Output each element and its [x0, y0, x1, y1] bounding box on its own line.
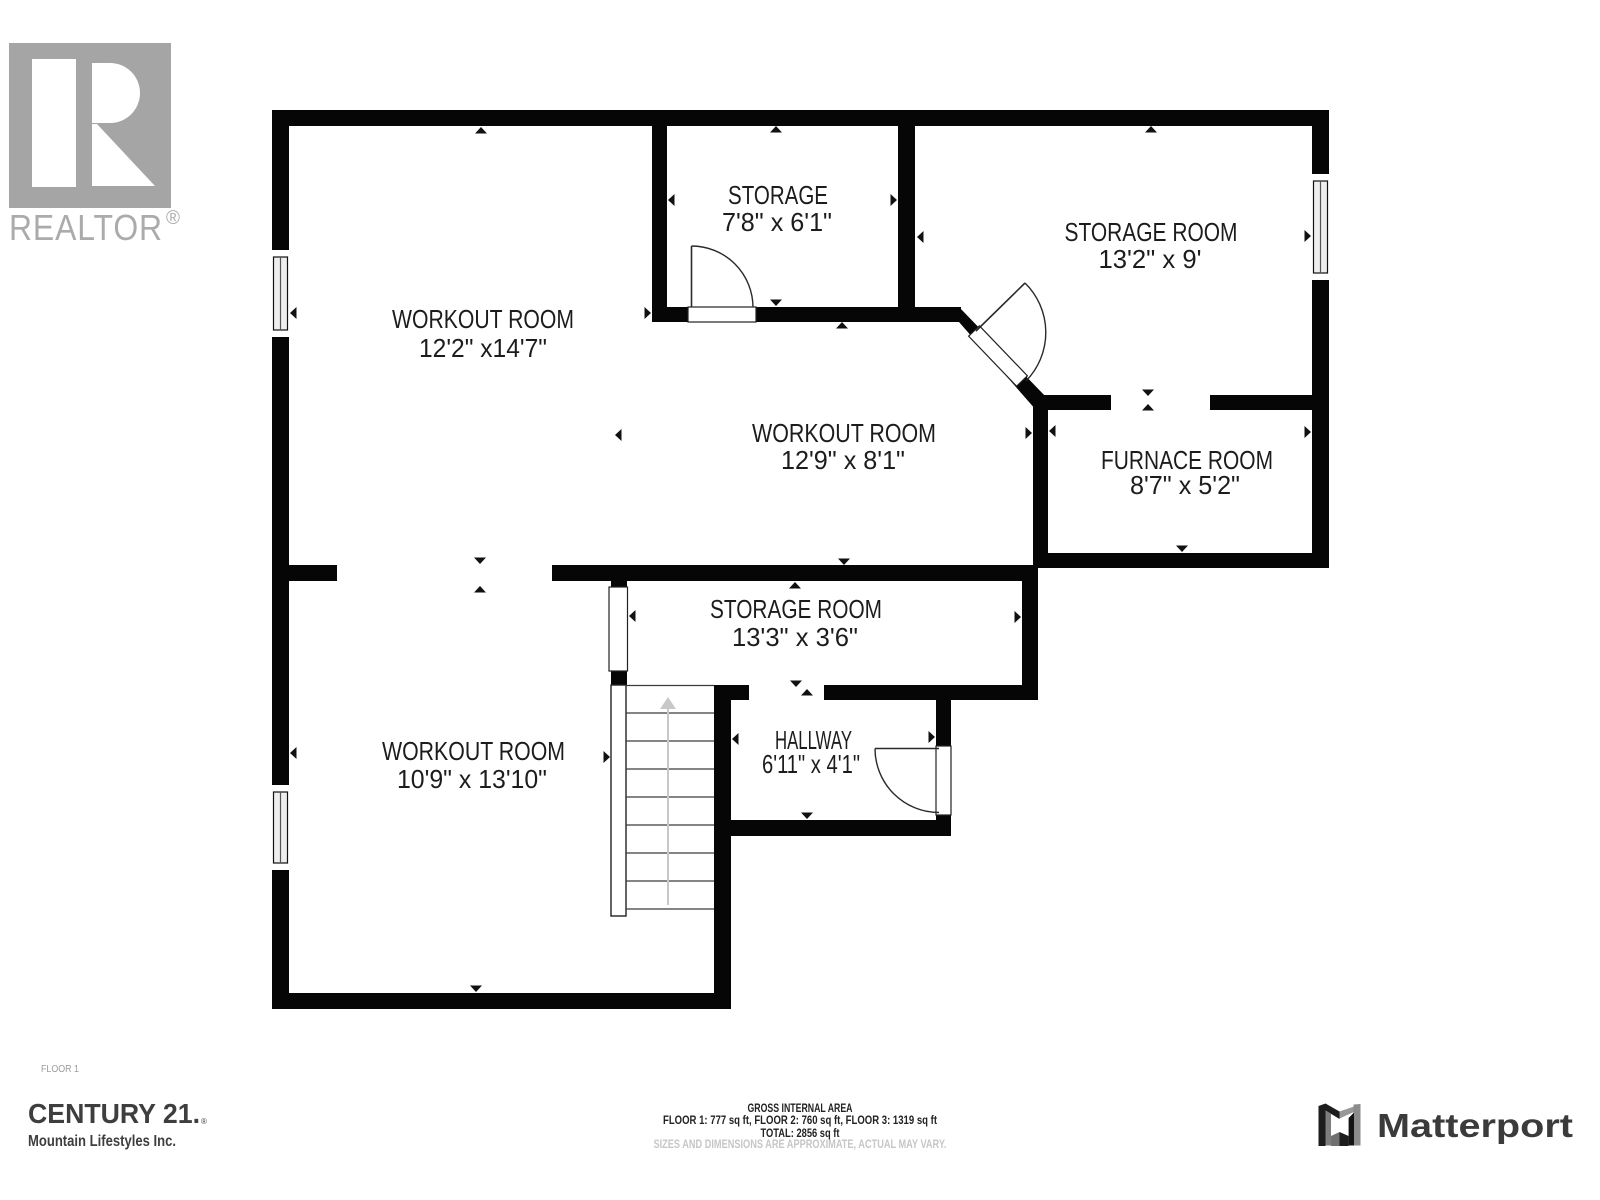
svg-text:13'2" x 9': 13'2" x 9'	[1099, 244, 1202, 274]
svg-text:CENTURY 21.: CENTURY 21.	[28, 1098, 200, 1129]
svg-text:STORAGE ROOM: STORAGE ROOM	[710, 594, 882, 624]
svg-text:Mountain Lifestyles Inc.: Mountain Lifestyles Inc.	[28, 1133, 176, 1150]
svg-text:12'9" x 8'1": 12'9" x 8'1"	[781, 445, 905, 475]
svg-text:STORAGE: STORAGE	[728, 180, 828, 210]
svg-text:WORKOUT ROOM: WORKOUT ROOM	[392, 304, 574, 334]
svg-text:13'3" x 3'6": 13'3" x 3'6"	[732, 622, 858, 652]
svg-text:Matterport: Matterport	[1377, 1107, 1573, 1144]
svg-text:REALTOR: REALTOR	[9, 207, 163, 248]
svg-text:®: ®	[166, 208, 180, 229]
svg-text:8'7" x 5'2": 8'7" x 5'2"	[1130, 470, 1240, 500]
svg-text:SIZES AND DIMENSIONS ARE APPRO: SIZES AND DIMENSIONS ARE APPROXIMATE, AC…	[654, 1137, 947, 1151]
svg-text:FLOOR 1: FLOOR 1	[41, 1064, 79, 1075]
svg-text:WORKOUT ROOM: WORKOUT ROOM	[382, 736, 565, 766]
svg-text:STORAGE ROOM: STORAGE ROOM	[1065, 217, 1238, 247]
svg-text:10'9" x 13'10": 10'9" x 13'10"	[397, 764, 547, 794]
svg-text:®: ®	[201, 1117, 207, 1126]
svg-text:WORKOUT ROOM: WORKOUT ROOM	[752, 418, 936, 448]
svg-text:12'2" x14'7": 12'2" x14'7"	[419, 333, 547, 363]
svg-text:FLOOR 1: 777 sq ft, FLOOR 2: 7: FLOOR 1: 777 sq ft, FLOOR 2: 760 sq ft, …	[663, 1113, 937, 1127]
svg-text:7'8" x 6'1": 7'8" x 6'1"	[722, 207, 832, 237]
svg-text:6'11" x 4'1": 6'11" x 4'1"	[762, 749, 860, 779]
